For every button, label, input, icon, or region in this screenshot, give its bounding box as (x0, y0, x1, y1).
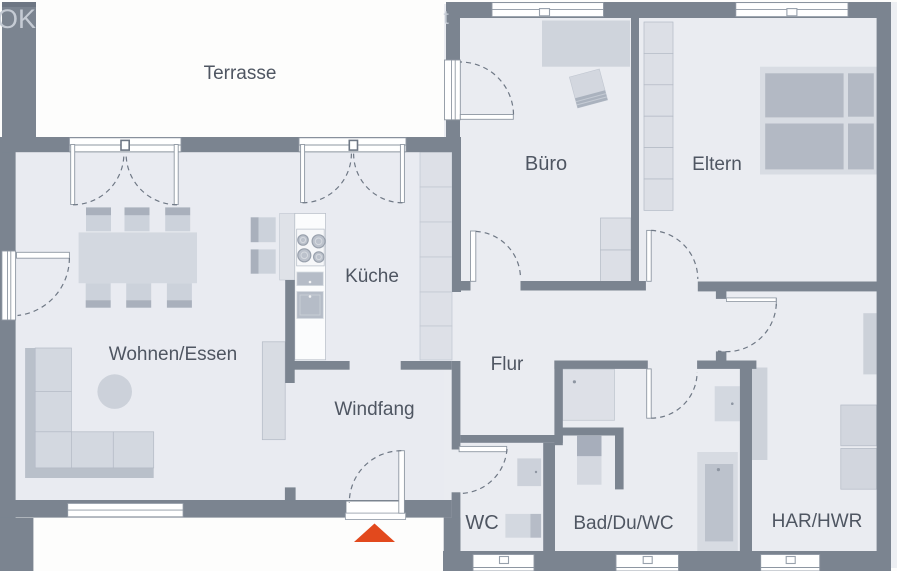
svg-text:Terrasse: Terrasse (204, 63, 277, 84)
svg-text:Büro: Büro (525, 153, 567, 175)
svg-text:Flur: Flur (491, 354, 524, 375)
svg-text:Bad/Du/WC: Bad/Du/WC (573, 513, 673, 534)
svg-text:Windfang: Windfang (334, 399, 414, 420)
svg-text:t: t (444, 8, 450, 29)
svg-text:HAR/HWR: HAR/HWR (772, 511, 863, 532)
svg-text:Eltern: Eltern (692, 154, 742, 175)
svg-text:OK: OK (0, 4, 36, 34)
svg-text:Küche: Küche (345, 266, 399, 287)
svg-text:WC: WC (465, 512, 498, 534)
svg-text:Wohnen/Essen: Wohnen/Essen (109, 344, 238, 365)
